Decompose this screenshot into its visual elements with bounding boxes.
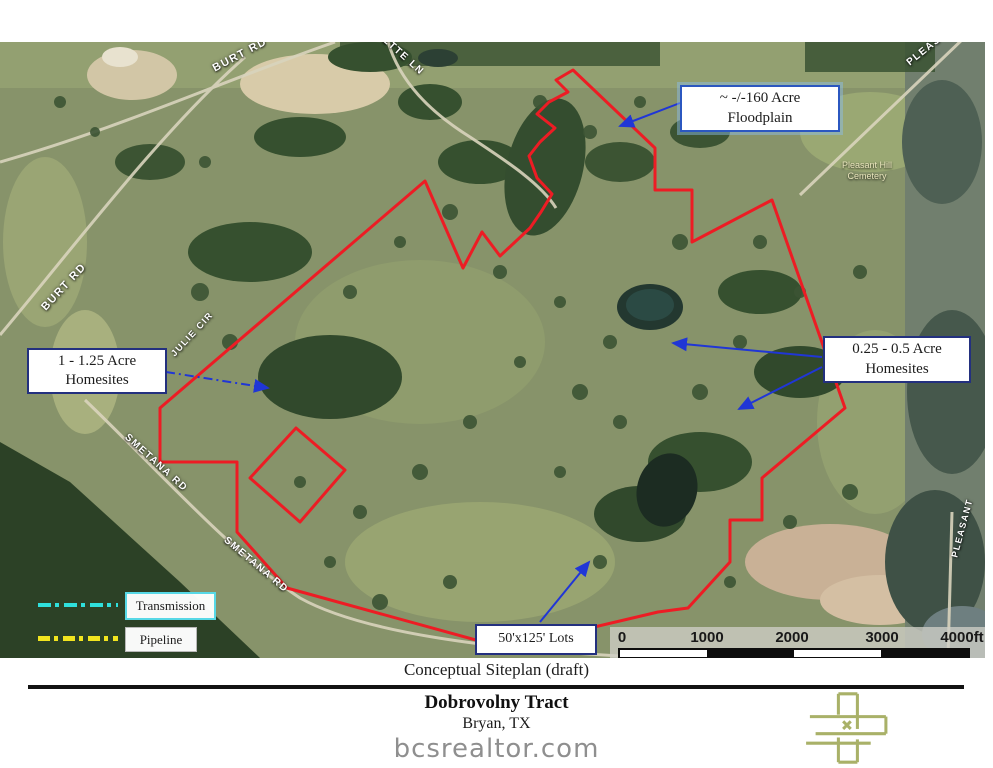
realtor-logo-icon xyxy=(800,690,892,766)
cemetery-label-line2: Cemetery xyxy=(822,171,912,182)
callout-homesites-large-line1: 1 - 1.25 Acre xyxy=(58,352,136,372)
callout-homesites-small-line2: Homesites xyxy=(865,360,928,380)
divider-rule xyxy=(28,685,964,689)
callout-homesites-small-line1: 0.25 - 0.5 Acre xyxy=(852,340,942,360)
callout-lots-label: 50'x125' Lots xyxy=(498,630,573,648)
scale-segment-4 xyxy=(881,650,968,657)
callout-floodplain-line1: ~ -/-160 Acre xyxy=(720,89,801,109)
siteplan-flyer: BURT RD ETTE LN BURT RD JULIE CIR SMETAN… xyxy=(0,0,993,768)
aerial-map: BURT RD ETTE LN BURT RD JULIE CIR SMETAN… xyxy=(0,42,985,658)
callout-homesites-large: 1 - 1.25 Acre Homesites xyxy=(27,348,167,394)
transmission-line-sample xyxy=(38,603,118,607)
scale-segment-1 xyxy=(620,650,707,657)
legend-transmission: Transmission xyxy=(125,592,216,620)
legend-transmission-label: Transmission xyxy=(136,598,206,614)
scale-tick-1000: 1000 xyxy=(690,629,723,646)
scale-tick-2000: 2000 xyxy=(775,629,808,646)
scale-bar-segments xyxy=(618,648,970,658)
callout-homesites-large-line2: Homesites xyxy=(65,371,128,391)
scale-tick-0: 0 xyxy=(618,629,626,646)
realtor-logo xyxy=(800,690,892,768)
callout-lots: 50'x125' Lots xyxy=(475,624,597,655)
cemetery-label: Pleasant Hill Cemetery xyxy=(822,160,912,182)
callout-homesites-small: 0.25 - 0.5 Acre Homesites xyxy=(823,336,971,383)
legend-pipeline: Pipeline xyxy=(125,627,197,652)
scale-tick-3000: 3000 xyxy=(865,629,898,646)
cemetery-label-line1: Pleasant Hill xyxy=(822,160,912,171)
pipeline-line-sample xyxy=(38,636,118,641)
scale-segment-2 xyxy=(707,650,794,657)
callout-floodplain-line2: Floodplain xyxy=(727,109,792,129)
scale-segment-3 xyxy=(794,650,881,657)
scale-tick-4000ft: 4000ft xyxy=(940,629,983,646)
legend-pipeline-label: Pipeline xyxy=(140,632,183,648)
scale-bar: 0 1000 2000 3000 4000ft xyxy=(610,627,985,658)
map-caption: Conceptual Siteplan (draft) xyxy=(0,660,993,680)
callout-floodplain: ~ -/-160 Acre Floodplain xyxy=(680,85,840,132)
